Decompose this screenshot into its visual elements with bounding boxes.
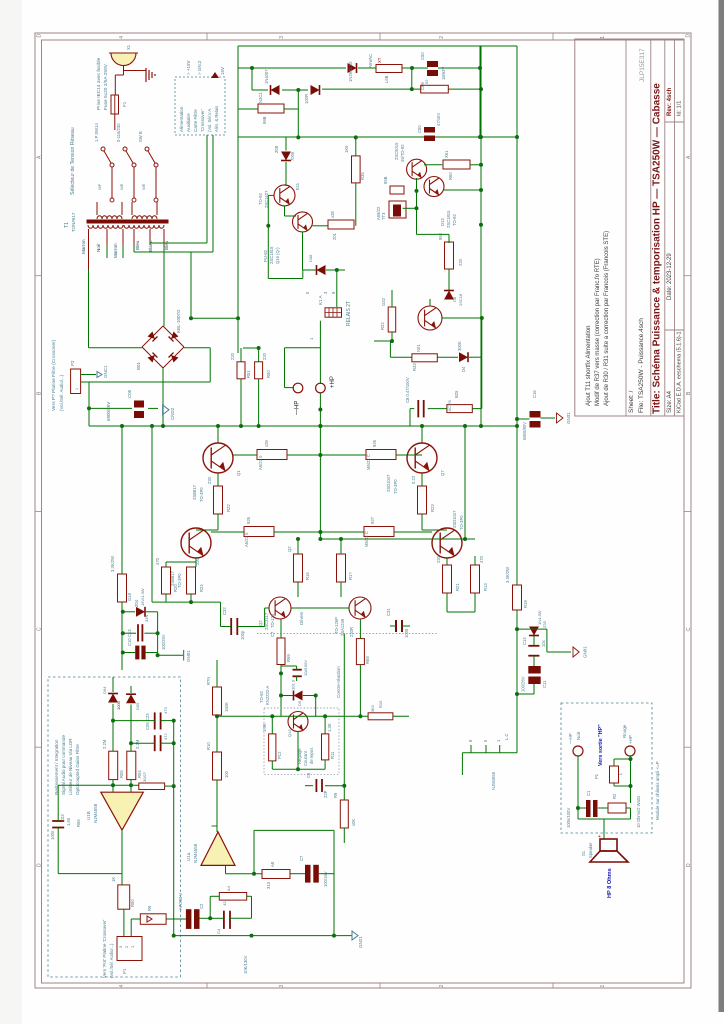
svg-text:1 P SW14: 1 P SW14 — [94, 123, 99, 142]
svg-text:AC/R5: AC/R5 — [448, 400, 452, 411]
svg-text:U1a: U1a — [186, 852, 191, 861]
svg-text:3.3K/2W: 3.3K/2W — [505, 567, 510, 583]
svg-text:2SD1047: 2SD1047 — [452, 510, 457, 528]
svg-text:10K/130V: 10K/130V — [243, 955, 248, 974]
svg-text:R68: R68 — [365, 656, 370, 664]
svg-text:926: 926 — [372, 439, 377, 447]
svg-text:TO-126P: TO-126P — [334, 617, 339, 634]
svg-text:R50: R50 — [266, 370, 271, 378]
svg-text:220: 220 — [458, 258, 463, 266]
svg-text:Speaker: Speaker — [588, 842, 593, 858]
svg-text:Alimentation: Alimentation — [179, 106, 184, 132]
svg-text:92: 92 — [424, 79, 429, 84]
svg-text:C05: C05 — [127, 389, 132, 398]
svg-text:(Vol./Sél. Audio/...): (Vol./Sél. Audio/...) — [109, 943, 114, 978]
svg-text:A5/22 0: A5/22 0 — [258, 455, 263, 470]
svg-text:C14: C14 — [522, 637, 527, 645]
svg-text:WF: WF — [97, 183, 102, 190]
svg-text:10 Ohms/2 Watts: 10 Ohms/2 Watts — [636, 796, 641, 828]
svg-text:A59/22: A59/22 — [376, 206, 381, 220]
svg-text:Date: 2023-12-29: Date: 2023-12-29 — [667, 253, 673, 300]
svg-text:33N: 33N — [144, 615, 149, 622]
svg-text:X1: X1 — [126, 44, 131, 50]
svg-text:C1: C1 — [586, 790, 591, 796]
svg-text:R50: R50 — [130, 899, 135, 907]
svg-text:927: 927 — [370, 516, 375, 524]
svg-text:R69: R69 — [286, 654, 291, 662]
svg-text:6800/80V: 6800/80V — [522, 422, 527, 440]
svg-text:(Vol./Sél. Audio/...): (Vol./Sél. Audio/...) — [59, 374, 64, 411]
svg-text:R11: R11 — [330, 751, 335, 759]
svg-text:2.2M: 2.2M — [135, 739, 140, 749]
svg-text:A6/22 0: A6/22 0 — [244, 532, 249, 547]
svg-text:C05 C23: C05 C23 — [145, 713, 150, 730]
svg-text:2SD1047: 2SD1047 — [386, 474, 391, 492]
svg-text:Contre-réaction: Contre-réaction — [336, 666, 341, 698]
svg-text:95B: 95B — [383, 176, 388, 184]
svg-text:Prise IEC14 avec fusible: Prise IEC14 avec fusible — [96, 57, 102, 110]
svg-text:P2: P2 — [70, 360, 75, 366]
svg-text:2.2M: 2.2M — [102, 739, 107, 749]
svg-text:Signal Audio pour commande: Signal Audio pour commande — [61, 735, 66, 795]
svg-text:E11: E11 — [295, 182, 300, 190]
svg-text:220R: 220R — [349, 627, 354, 637]
svg-text:KBL-1007G: KBL-1007G — [176, 309, 181, 333]
svg-text:Rev: 4sch: Rev: 4sch — [667, 87, 673, 116]
svg-text:PU-92: PU-92 — [263, 249, 268, 262]
svg-text:R22: R22 — [226, 504, 231, 512]
svg-text:N3C1: N3C1 — [258, 92, 263, 103]
svg-text:P12: P12 — [277, 751, 282, 759]
svg-text:16V/1.3W: 16V/1.3W — [140, 588, 145, 606]
svg-text:Alim. & Relais: Alim. & Relais — [214, 106, 219, 132]
svg-text:C32: C32 — [222, 607, 227, 615]
svg-text:KiCad E.D.A. eeschema (5.1.6): KiCad E.D.A. eeschema (5.1.6)-1 — [677, 331, 683, 413]
svg-text:18/63V: 18/63V — [441, 67, 446, 80]
svg-text:C11: C11 — [542, 680, 547, 688]
svg-text:Q13: Q13 — [287, 729, 292, 737]
svg-text:Optocoupled Gains Filtre: Optocoupled Gains Filtre — [75, 744, 80, 795]
svg-text:3.3K/2W: 3.3K/2W — [110, 556, 115, 572]
svg-text:Q16 (Q-): Q16 (Q-) — [275, 247, 280, 264]
svg-text:Module sur châssis ampli <=P: Module sur châssis ampli <=P — [655, 761, 660, 820]
svg-text:R15: R15 — [378, 700, 383, 708]
svg-text:S1: S1 — [581, 850, 586, 856]
svg-text:100R: 100R — [304, 94, 309, 104]
svg-text:926: 926 — [246, 516, 251, 524]
svg-text:R22: R22 — [380, 322, 385, 330]
svg-text:R10: R10 — [206, 742, 211, 750]
svg-text:C: C — [37, 627, 43, 631]
svg-text:2: 2 — [439, 985, 445, 988]
svg-text:Courant: Courant — [303, 750, 308, 766]
svg-text:TO-92: TO-92 — [452, 214, 457, 226]
svg-text:C16: C16 — [532, 390, 537, 398]
svg-text:'Crossover': 'Crossover' — [200, 109, 205, 132]
svg-text:X51: X51 — [444, 150, 449, 158]
svg-text:File: TSA250W - Puissance.4sch: File: TSA250W - Puissance.4sch — [638, 318, 645, 413]
svg-text:—HP: —HP — [568, 733, 573, 744]
svg-text:M5/22 C: M5/22 C — [366, 454, 371, 470]
svg-text:(Vol. Sél.V.A.: (Vol. Sél.V.A. — [207, 108, 212, 132]
svg-text:CND2: CND2 — [170, 407, 175, 420]
svg-text:R60: R60 — [448, 172, 453, 180]
svg-text:TO-3P0: TO-3P0 — [459, 515, 464, 530]
svg-text:JLP15E317: JLP15E317 — [639, 48, 646, 82]
svg-text:TO-3P0: TO-3P0 — [393, 479, 398, 494]
svg-text:R21: R21 — [455, 583, 460, 591]
svg-text:GN01: GN01 — [583, 646, 588, 658]
svg-text:Z08: Z08 — [274, 145, 279, 153]
svg-text:R6: R6 — [147, 905, 152, 911]
svg-text:R23: R23 — [430, 504, 435, 512]
svg-text:2SC18: 2SC18 — [458, 293, 463, 306]
svg-text:100n: 100n — [50, 830, 55, 840]
svg-text:R56: R56 — [76, 819, 81, 827]
svg-text:99B: 99B — [262, 116, 267, 124]
svg-text:C: C — [686, 627, 692, 631]
svg-text:6800/86V: 6800/86V — [106, 402, 111, 421]
svg-text:49/TO-92: 49/TO-92 — [400, 144, 405, 162]
svg-text:D: D — [37, 34, 43, 38]
svg-text:Q2: Q2 — [258, 620, 263, 626]
svg-text:Z33: Z33 — [542, 620, 547, 628]
svg-text:R2: R2 — [612, 793, 617, 799]
svg-text:2SC1815: 2SC1815 — [269, 246, 274, 264]
svg-text:—HP: —HP — [295, 401, 301, 415]
svg-text:D: D — [686, 863, 692, 867]
svg-text:G18: G18 — [127, 592, 132, 601]
svg-text:R?N: R?N — [206, 677, 211, 685]
svg-text:TO-92: TO-92 — [258, 193, 263, 205]
svg-text:Sélecteur de Tension Réseau: Sélecteur de Tension Réseau — [70, 127, 76, 195]
svg-text:100: 100 — [224, 770, 229, 778]
svg-text:7006: 7006 — [290, 151, 295, 161]
svg-text:Marron: Marron — [113, 243, 118, 258]
svg-text:R24: R24 — [199, 584, 204, 592]
svg-text:101 0: 101 0 — [291, 679, 296, 690]
svg-text:Sheet: /: Sheet: / — [628, 390, 635, 413]
svg-text:1K5: 1K5 — [344, 145, 349, 153]
svg-text:C31: C31 — [386, 608, 391, 616]
svg-text:R1?: R1? — [348, 572, 353, 580]
svg-text:D08: D08 — [308, 254, 313, 262]
svg-text:NJM4558: NJM4558 — [491, 771, 496, 790]
svg-text:R35: R35 — [360, 172, 365, 180]
svg-text:D04: D04 — [102, 686, 107, 694]
svg-text:Marron: Marron — [81, 239, 86, 254]
svg-text:HP 8 Ohms: HP 8 Ohms — [607, 868, 613, 898]
svg-text:D9: D9 — [297, 700, 302, 706]
svg-text:30/2?: 30/2? — [142, 771, 147, 782]
svg-text:RELAIS 2T: RELAIS 2T — [346, 301, 352, 326]
svg-text:R13: R13 — [483, 583, 488, 591]
svg-text:Q7: Q7 — [440, 470, 445, 476]
svg-text:Vers P? Platine Filtre (Crosso: Vers P? Platine Filtre (Crossover) — [51, 339, 57, 411]
svg-text:Rouge: Rouge — [622, 724, 627, 738]
svg-text:300K: 300K — [457, 341, 462, 351]
svg-text:R33: R33 — [412, 363, 417, 371]
svg-text:1: 1 — [600, 36, 606, 39]
svg-text:100p: 100p — [240, 630, 245, 640]
svg-text:3K3: 3K3 — [371, 705, 375, 712]
svg-text:x28: x28 — [330, 211, 335, 218]
svg-text:GNC1: GNC1 — [103, 365, 108, 378]
svg-text:Ajout T11 shortfix Alimentatio: Ajout T11 shortfix Alimentation — [586, 326, 592, 407]
svg-text:1N4007: 1N4007 — [264, 69, 269, 84]
svg-text:Z04: Z04 — [134, 599, 139, 607]
svg-text:N01: N01 — [416, 344, 421, 352]
svg-text:D13: D13 — [440, 218, 445, 226]
svg-text:B01: B01 — [136, 361, 141, 370]
svg-text:+HP: +HP — [330, 376, 336, 388]
svg-text:1.5K: 1.5K — [262, 723, 267, 732]
svg-text:47J: 47J — [163, 734, 168, 740]
svg-text:T1: T1 — [64, 222, 70, 228]
svg-text:100/26V: 100/26V — [521, 676, 526, 692]
svg-text:U1B: U1B — [86, 811, 91, 820]
svg-text:x29: x29 — [264, 440, 269, 447]
svg-text:C50: C50 — [420, 52, 425, 60]
svg-text:Noir: Noir — [576, 731, 581, 740]
svg-text:Limiteur de Niveau Via LDR: Limiteur de Niveau Via LDR — [68, 738, 73, 795]
svg-text:D05: D05 — [135, 702, 140, 710]
svg-text:GN21: GN21 — [358, 936, 363, 948]
svg-text:R9: R9 — [333, 792, 338, 798]
svg-text:Carte Filtre: Carte Filtre — [193, 109, 198, 132]
svg-text:2SC5015: 2SC5015 — [394, 142, 399, 160]
svg-text:Blanc: Blanc — [148, 240, 153, 252]
svg-text:TO-126: TO-126 — [270, 613, 275, 628]
svg-text:Fuse 5x20 2/5A 250V: Fuse 5x20 2/5A 250V — [103, 63, 109, 110]
svg-text:Drivers: Drivers — [299, 612, 304, 625]
svg-text:2SB817: 2SB817 — [192, 484, 197, 500]
svg-text:TO-3P0: TO-3P0 — [199, 487, 204, 502]
svg-text:D8: D8 — [452, 296, 457, 302]
svg-text:TON#617: TON#617 — [71, 212, 76, 232]
svg-text:C7: C7 — [270, 631, 275, 637]
svg-text:TO-92: TO-92 — [259, 691, 264, 703]
svg-text:1N2945 60: 1N2945 60 — [348, 61, 353, 82]
svg-text:L6B: L6B — [384, 75, 389, 83]
svg-text:R05: R05 — [119, 770, 124, 778]
svg-text:WE: WE — [119, 183, 124, 190]
svg-text:1K: 1K — [111, 877, 116, 882]
svg-text:de repos: de repos — [309, 748, 314, 764]
svg-text:Vers 'Pot' Platine 'Crossover': Vers 'Pot' Platine 'Crossover' — [102, 919, 107, 978]
svg-text:1000: 1000 — [116, 700, 121, 710]
svg-text:3: 3 — [279, 985, 285, 988]
svg-text:Size: A4: Size: A4 — [667, 390, 673, 413]
svg-text:422: 422 — [222, 899, 227, 906]
svg-text:R16: R16 — [305, 572, 310, 580]
svg-text:220: 220 — [230, 352, 235, 360]
svg-text:220: 220 — [436, 555, 441, 563]
svg-text:TT3: TT3 — [381, 212, 386, 220]
svg-text:313: 313 — [266, 881, 271, 889]
svg-text:> GN,2: > GN,2 — [197, 60, 202, 75]
svg-text:R20: R20 — [173, 584, 178, 592]
svg-text:SW B: SW B — [138, 131, 143, 142]
svg-text:220: 220 — [262, 352, 267, 360]
svg-text:473: 473 — [163, 707, 168, 714]
svg-text:1,55: 1,55 — [66, 817, 71, 826]
svg-text:201: 201 — [332, 232, 337, 240]
svg-text:XT: XT — [377, 57, 382, 63]
svg-text:Vers sortie "HP": Vers sortie "HP" — [598, 724, 604, 766]
svg-text:220: 220 — [207, 476, 212, 484]
svg-text:0-115/230: 0-115/230 — [116, 123, 121, 142]
svg-text:100n/100V: 100n/100V — [566, 808, 571, 828]
svg-text:A5VAC: A5VAC — [368, 53, 373, 68]
svg-text:F1: F1 — [122, 101, 127, 107]
svg-text:Bleu: Bleu — [135, 240, 140, 250]
svg-text:B25: B25 — [454, 390, 459, 398]
svg-text:C6: C6 — [306, 772, 311, 778]
svg-text:GN31: GN31 — [566, 412, 571, 424]
svg-text:C4: C4 — [216, 928, 221, 934]
svg-text:4: 4 — [119, 36, 125, 39]
svg-text:Title: Schéma Puissance & temp: Title: Schéma Puissance & temporisation … — [652, 83, 663, 414]
svg-text:NJM4558: NJM4558 — [193, 843, 198, 863]
svg-text:1: 1 — [75, 388, 79, 390]
svg-text:470: 470 — [155, 557, 160, 565]
svg-text:Bleu: Bleu — [164, 240, 169, 250]
svg-text:A4: A4 — [226, 885, 231, 891]
svg-text:Q2: Q2 — [287, 546, 292, 552]
svg-text:1005: 1005 — [404, 628, 409, 638]
svg-text:C7: C7 — [299, 855, 304, 861]
svg-text:1: 1 — [600, 985, 606, 988]
svg-text:4: 4 — [119, 985, 125, 988]
svg-text:L.C: L.C — [504, 733, 509, 740]
svg-text:0.22: 0.22 — [411, 475, 416, 484]
svg-text:3: 3 — [279, 36, 285, 39]
svg-text:Modif de R37 vers masse (corre: Modif de R37 vers masse (correction par … — [595, 258, 601, 406]
svg-text:> +15V: > +15V — [186, 60, 191, 75]
svg-text:+HP: +HP — [628, 735, 633, 744]
svg-text:Q1: Q1 — [236, 470, 241, 476]
svg-text:15V: 15V — [220, 67, 225, 75]
svg-text:+: + — [598, 834, 601, 840]
svg-text:C2: C2 — [199, 903, 204, 909]
svg-text:470: 470 — [479, 555, 484, 563]
svg-text:Auxiliaire: Auxiliaire — [186, 113, 191, 132]
svg-text:A8: A8 — [270, 861, 275, 867]
svg-text:NJM4558: NJM4558 — [93, 803, 98, 823]
svg-text:C03: C03 — [60, 814, 65, 822]
svg-text:C50: C50 — [417, 125, 422, 133]
svg-text:K1 A: K1 A — [318, 295, 323, 305]
svg-text:Noir: Noir — [96, 243, 101, 252]
svg-text:150K: 150K — [224, 702, 229, 712]
svg-text:10x: 10x — [541, 639, 546, 647]
svg-text:220: 220 — [195, 557, 200, 565]
svg-text:GN01: GN01 — [186, 650, 191, 662]
svg-text:P1: P1 — [122, 968, 127, 974]
svg-text:KN2222-A: KN2222-A — [265, 685, 270, 705]
svg-text:D: D — [686, 34, 692, 38]
svg-text:x0K: x0K — [351, 819, 356, 826]
svg-text:2SC1815: 2SC1815 — [446, 210, 451, 228]
svg-text:R51: R51 — [246, 370, 251, 378]
svg-text:100/25V: 100/25V — [161, 634, 166, 650]
svg-text:10//100V: 10//100V — [303, 660, 308, 676]
svg-text:P1: P1 — [594, 773, 599, 779]
svg-text:D4: D4 — [461, 366, 466, 372]
svg-text:Ajout de R30 / R31 suite a cor: Ajout de R30 / R31 suite a correction pa… — [604, 231, 610, 406]
svg-text:G32: G32 — [381, 297, 386, 306]
svg-text:R19: R19 — [523, 600, 528, 608]
svg-text:A7/250 V: A7/250 V — [178, 893, 183, 910]
svg-text:D: D — [37, 863, 43, 867]
svg-text:22P: 22P — [323, 790, 328, 798]
svg-text:C8 0,47/100V: C8 0,47/100V — [405, 377, 410, 403]
svg-text:Id: 1/1: Id: 1/1 — [677, 101, 683, 116]
svg-text:WE: WE — [141, 183, 146, 190]
svg-text:47/16V: 47/16V — [436, 113, 441, 126]
svg-text:1.3K: 1.3K — [327, 723, 332, 732]
svg-text:C10 C13: C10 C13 — [127, 629, 132, 646]
svg-text:2: 2 — [439, 36, 445, 39]
